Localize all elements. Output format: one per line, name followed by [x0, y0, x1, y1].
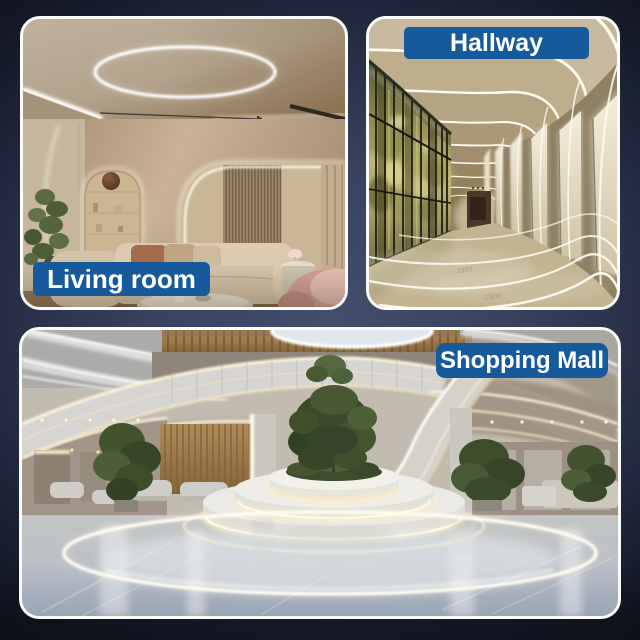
svg-text:1900: 1900	[483, 291, 502, 302]
